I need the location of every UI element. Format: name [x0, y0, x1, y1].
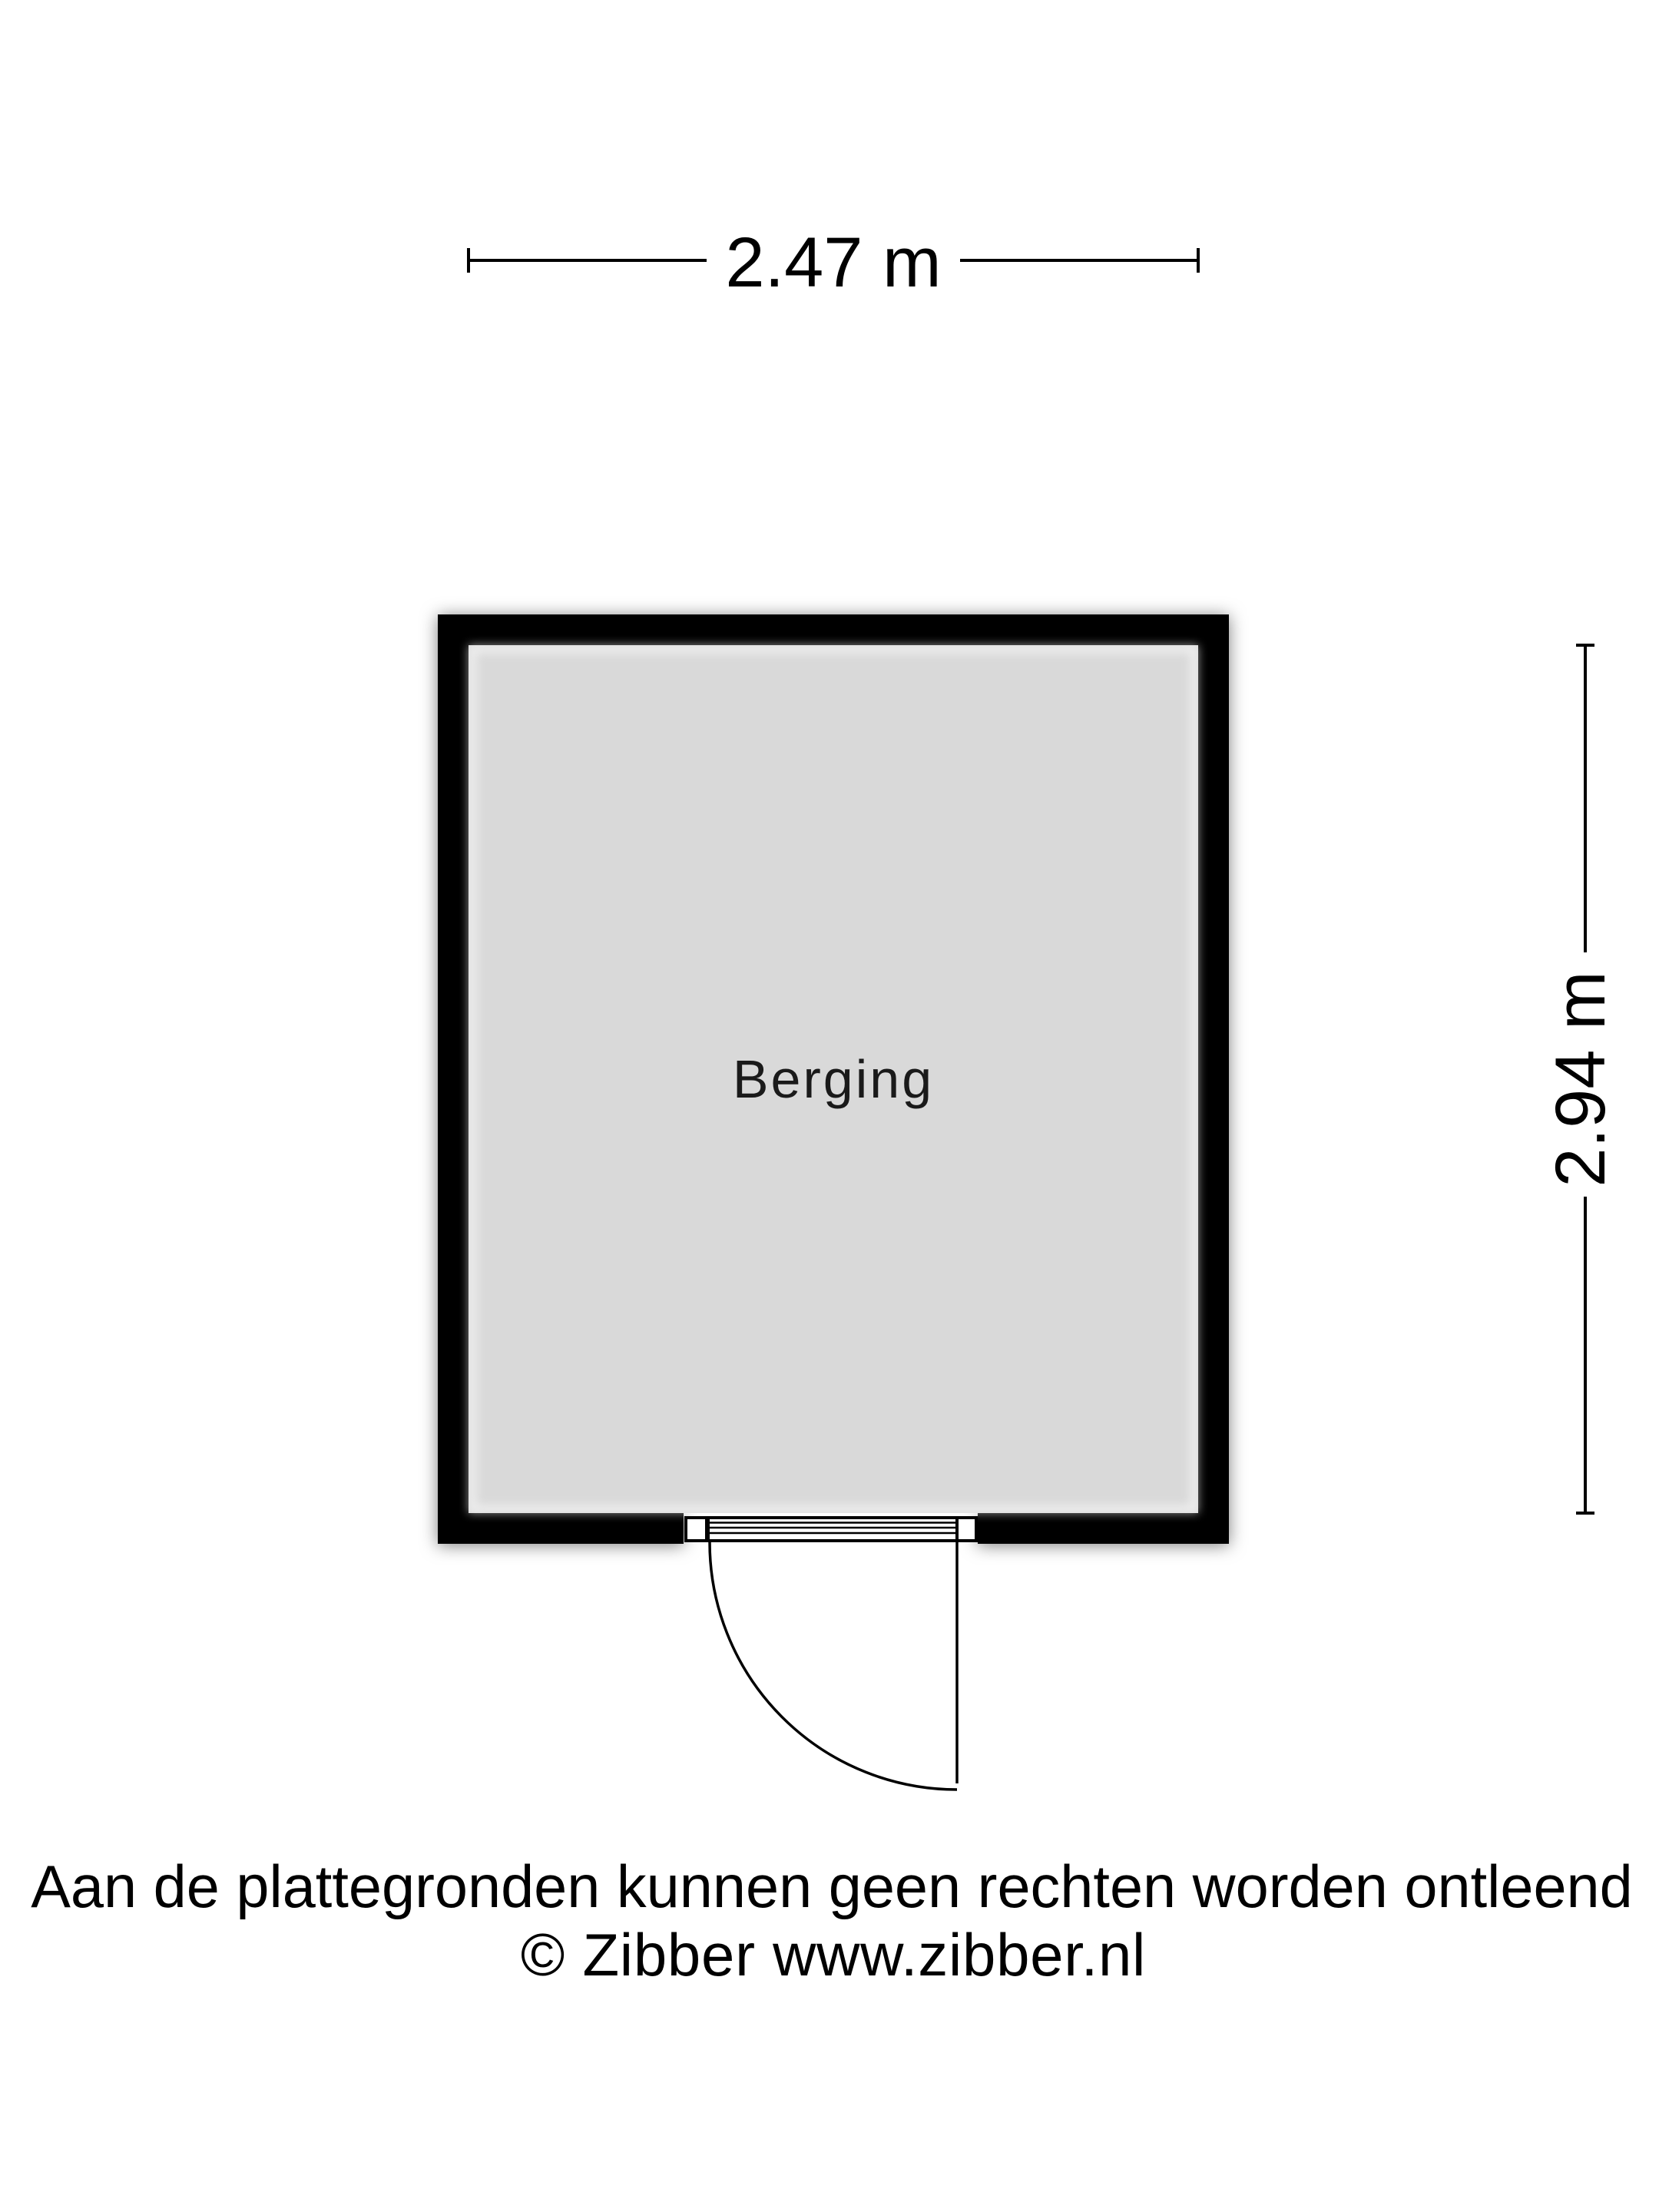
svg-text:2.47 m: 2.47 m — [725, 224, 941, 302]
svg-text:Aan de plattegronden kunnen ge: Aan de plattegronden kunnen geen rechten… — [31, 1854, 1633, 1920]
svg-text:2.94 m: 2.94 m — [1541, 971, 1620, 1187]
svg-text:© Zibber www.zibber.nl: © Zibber www.zibber.nl — [521, 1921, 1146, 1988]
svg-text:Berging: Berging — [733, 1049, 934, 1109]
